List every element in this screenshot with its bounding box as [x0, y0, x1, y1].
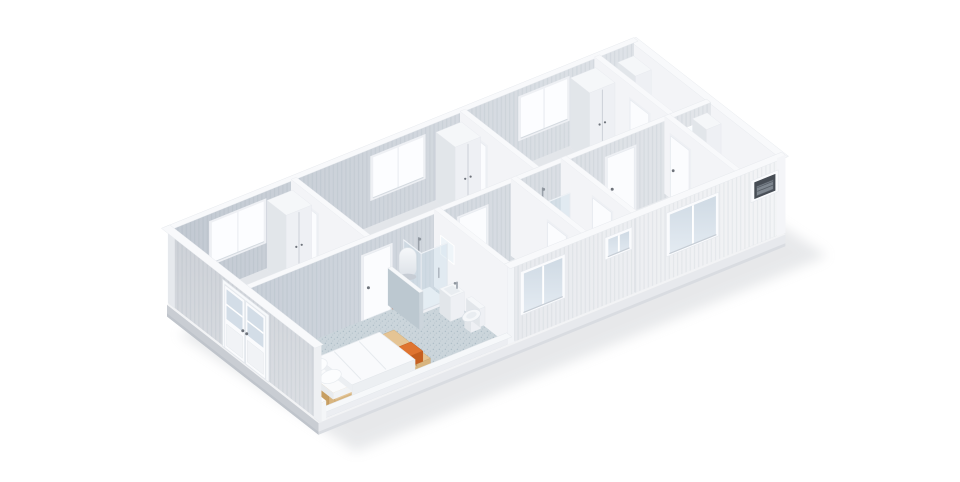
back-window-3-face [543, 88, 545, 129]
door-bedroom [361, 243, 393, 322]
french-door-dot [241, 329, 244, 332]
shower-unit-2-bath-dot [542, 188, 545, 191]
toilet-bedroom-bath-face [480, 307, 485, 327]
door-bedroom-face [364, 246, 391, 321]
front-wall-face [777, 155, 785, 237]
wardrobe-3-dot [604, 121, 606, 123]
door-unit-3-bath-dot [672, 169, 675, 172]
back-window-2-face [397, 147, 399, 188]
wardrobe-2-dot [464, 178, 466, 180]
wardrobe-1-dot [301, 244, 303, 246]
front-wall-face [508, 264, 515, 344]
bath-half-wall-face [419, 291, 423, 330]
wardrobe-1-dot [295, 246, 297, 248]
back-window-1-face [237, 212, 239, 253]
door-bedroom-dot [367, 286, 370, 289]
front-window-unit-3-face [692, 205, 694, 245]
floorplan-3d-view [0, 0, 960, 482]
wardrobe-3-dot [599, 123, 601, 125]
front-window-unit-2-bath-face [618, 235, 620, 253]
west-end-wall-face [314, 339, 321, 423]
french-door-dot [245, 332, 248, 335]
floorplan-render-stage [0, 0, 960, 482]
wardrobe-2-dot [470, 176, 472, 178]
door-unit-3-dot [611, 188, 614, 191]
front-window-unit-2-face [542, 266, 544, 306]
water-heater-body [399, 248, 416, 277]
shower-bedroom-bath-dot [418, 238, 421, 241]
sink-bedroom-bath-dot [454, 282, 457, 285]
